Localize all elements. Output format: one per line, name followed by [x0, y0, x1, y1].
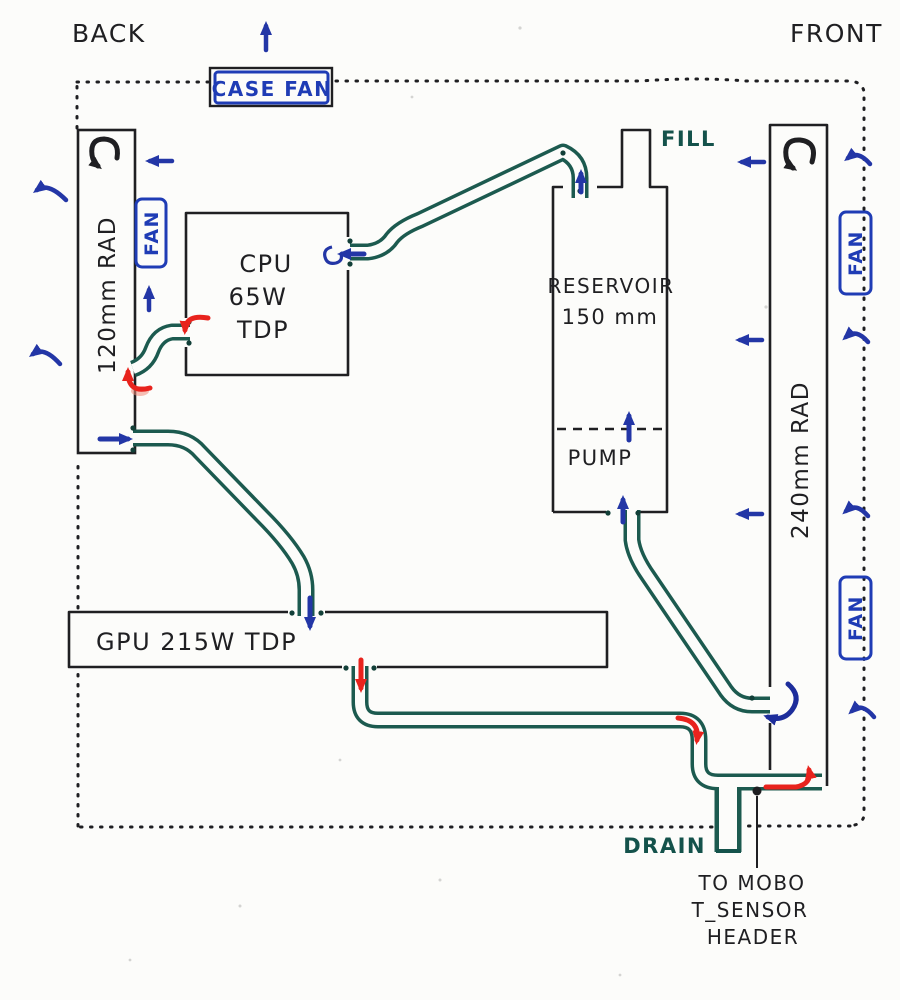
fan-label: FAN [141, 210, 163, 256]
rad-240mm-label: 240mm RAD [788, 381, 814, 539]
case-border-right [850, 98, 864, 826]
front-label: FRONT [790, 19, 883, 48]
sensor-dot-icon [753, 787, 762, 796]
airflow-arrow [852, 708, 874, 717]
case-fan-label: CASE FAN [210, 68, 332, 106]
tube-rad240-to-reservoir [632, 510, 770, 705]
pump-label: PUMP [568, 446, 633, 470]
temp-sensor: TO MOBO T_SENSOR HEADER [691, 787, 809, 950]
fan-label: FAN [845, 230, 867, 276]
drain-label: DRAIN [623, 834, 706, 858]
airflow-arrow [848, 155, 870, 164]
tube-cpu-to-rad120 [133, 332, 190, 369]
airflow-arrow [37, 188, 66, 200]
airflow-arrow [33, 352, 60, 364]
cpu-tdp-value: 65W [229, 283, 288, 311]
fill-port-body [622, 130, 650, 187]
tube-rad120-to-gpu [133, 438, 306, 616]
reservoir-size: 150 mm [562, 305, 659, 329]
gpu-label: GPU 215W TDP [96, 628, 297, 656]
drain-stub [716, 778, 741, 852]
tube-reservoir-to-cpu [350, 152, 580, 252]
sensor-note-line1: TO MOBO [698, 871, 806, 895]
case-fan-text: CASE FAN [212, 77, 333, 101]
cooling-loop-sketch: CASE FAN FAN FAN FAN BACK FRONT 120mm RA… [0, 0, 900, 1000]
cpu-tdp-label: TDP [236, 316, 289, 344]
airflow-arrow [846, 333, 868, 342]
sketch-canvas: CASE FAN FAN FAN FAN BACK FRONT 120mm RA… [0, 0, 900, 1000]
cpu-label: CPU [239, 250, 292, 278]
sensor-note-line3: HEADER [707, 925, 799, 949]
reservoir-label: RESERVOIR [547, 274, 674, 298]
tube-gpu-to-rad240 [360, 666, 822, 782]
back-label: BACK [72, 19, 146, 48]
fill-label: FILL [661, 127, 716, 151]
fan-label: FAN [845, 595, 867, 641]
case-border-top [77, 79, 864, 128]
rad-120mm-label: 120mm RAD [95, 216, 121, 374]
sensor-note-line2: T_SENSOR [691, 898, 809, 922]
